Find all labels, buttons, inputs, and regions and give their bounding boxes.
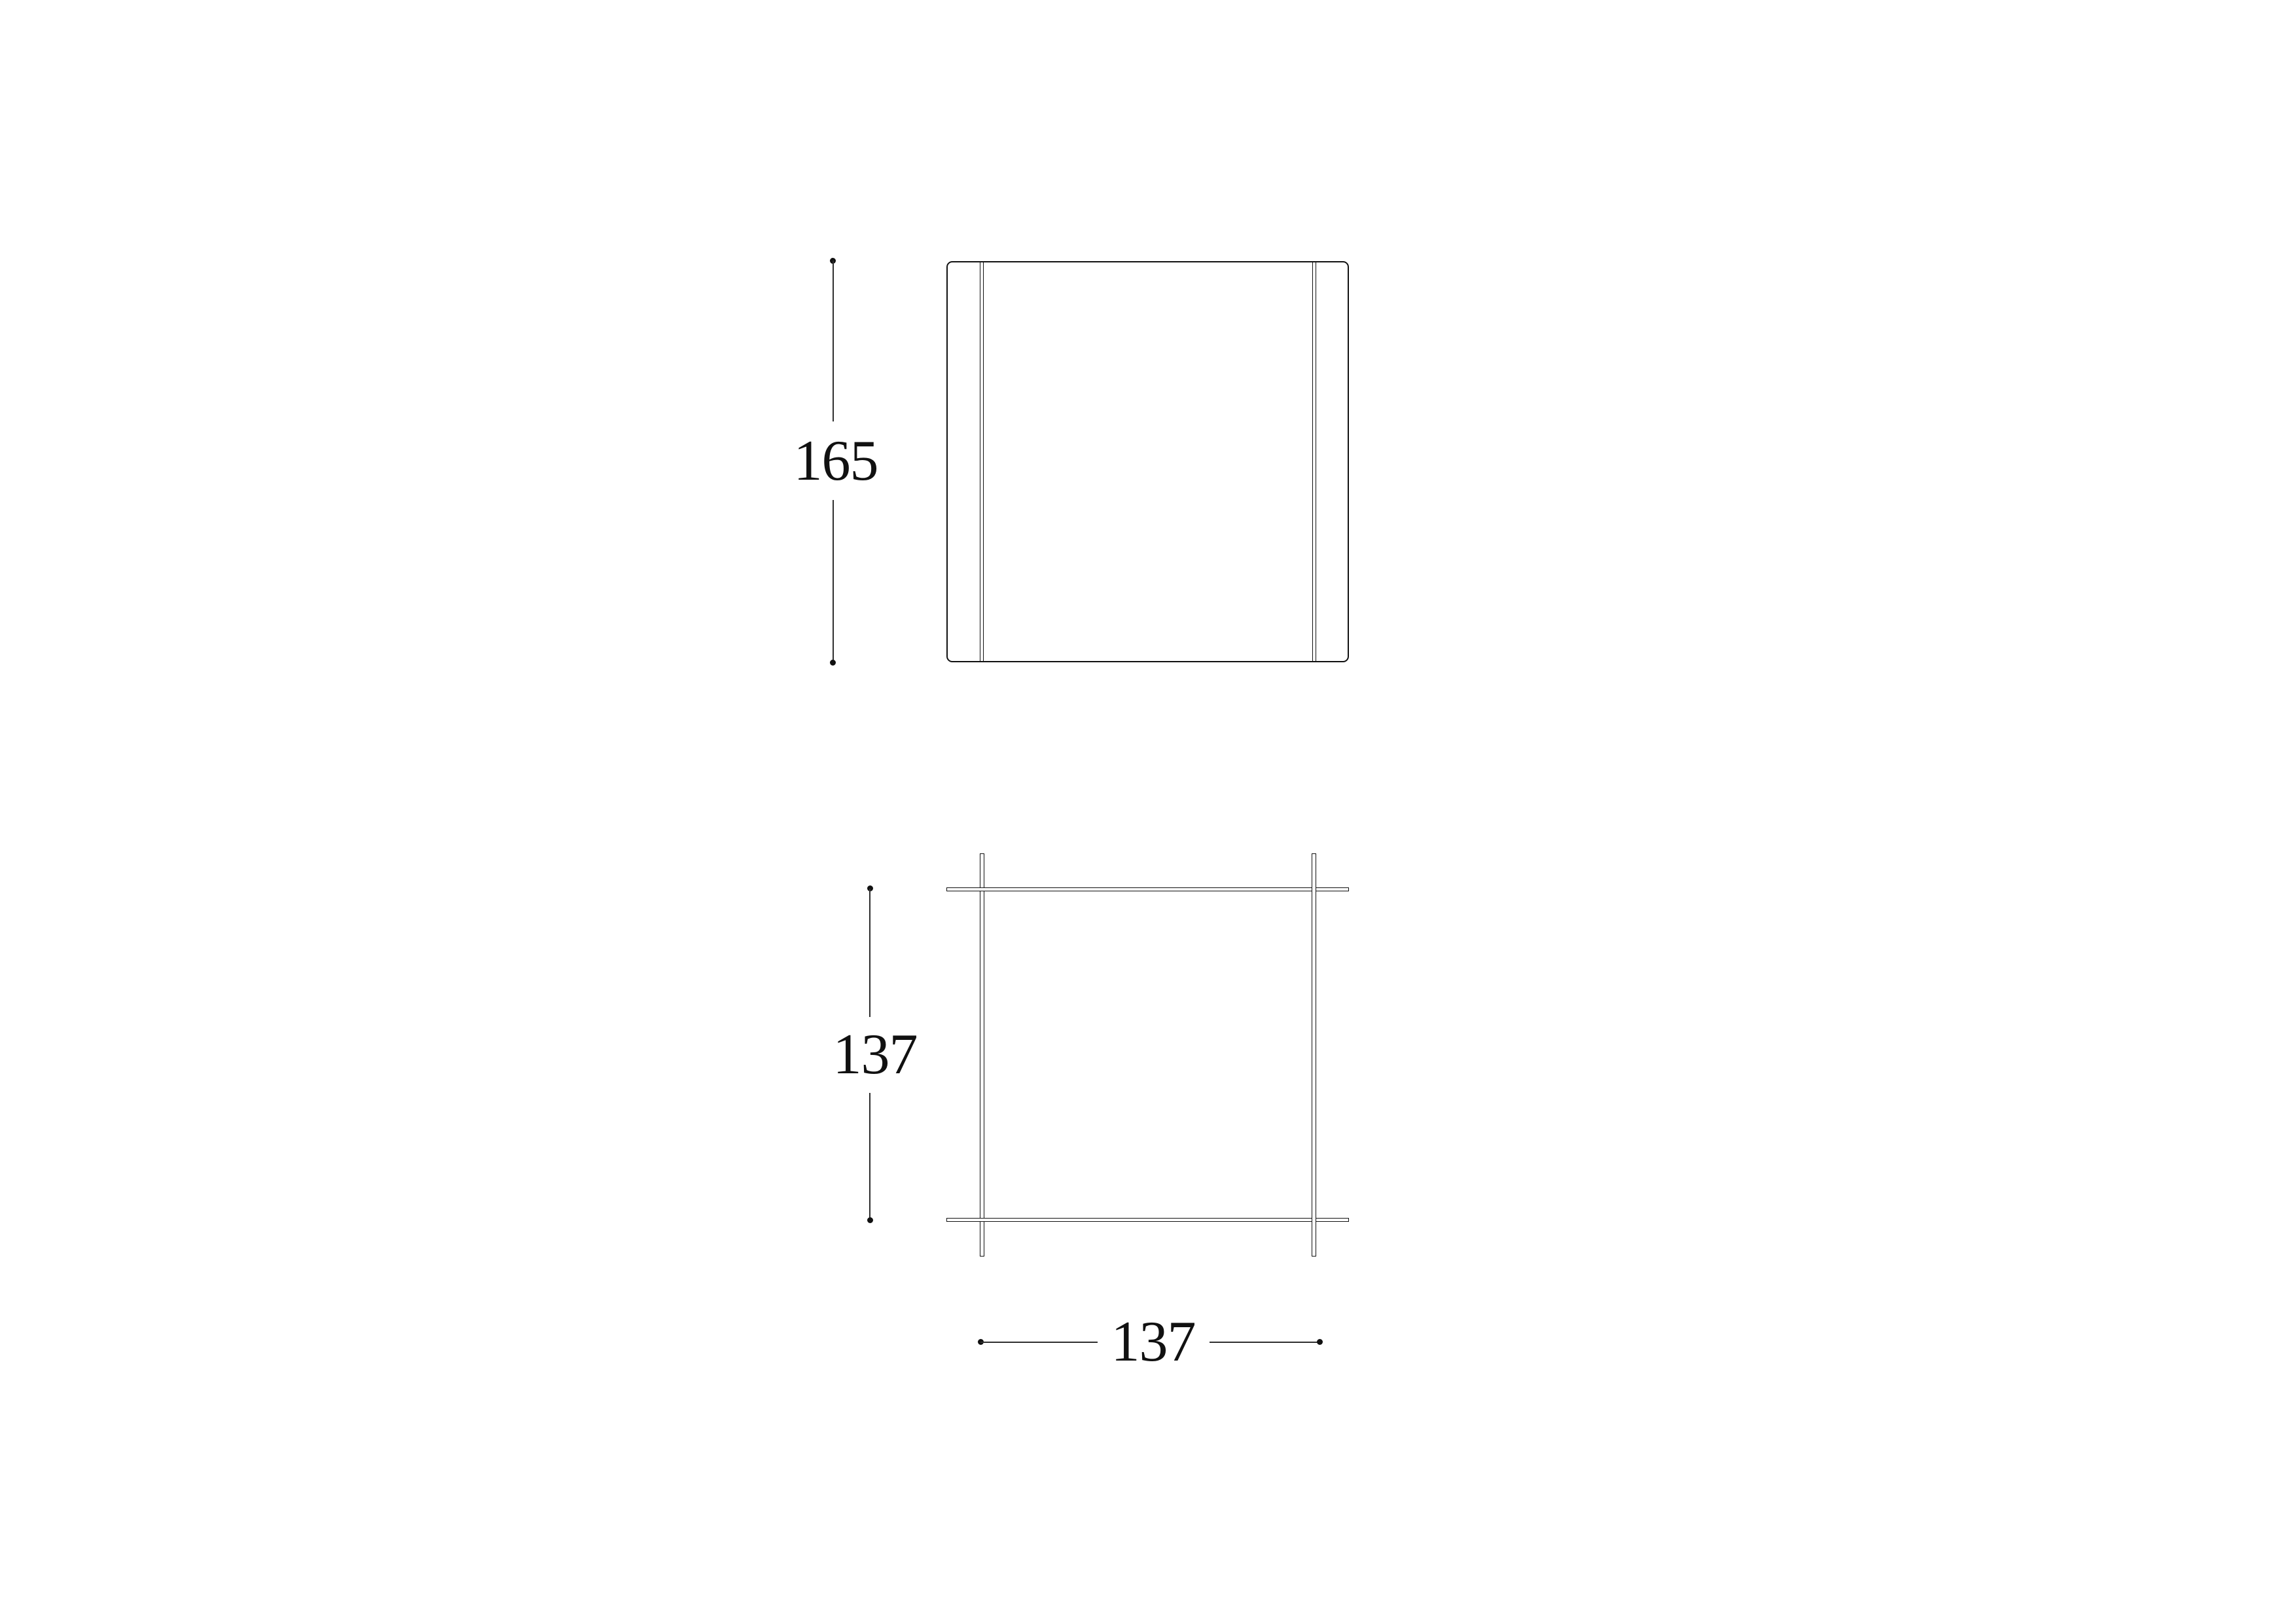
dimension-line-segment (833, 260, 834, 421)
dimension-line-segment (1210, 1342, 1319, 1343)
dimension-line-segment (833, 500, 834, 663)
front-view-right-panel-line (1312, 262, 1316, 661)
dimension-endpoint-dot (1317, 1339, 1323, 1345)
plan-view-top-edge-bar (946, 887, 1349, 892)
plan-view-right-leg-bar (1312, 853, 1316, 1257)
front-view-outline (946, 261, 1349, 662)
dimension-label-plan-depth: 137 (797, 1016, 954, 1094)
dimension-endpoint-dot (830, 660, 836, 666)
dimension-label-plan-width: 137 (1075, 1303, 1232, 1382)
plan-view-left-leg-bar (980, 853, 984, 1257)
front-view-left-panel-line (980, 262, 984, 661)
dimension-label-front-height: 165 (757, 422, 914, 501)
dimension-line-segment (869, 1093, 870, 1220)
dimension-line-segment (869, 889, 870, 1018)
plan-view-bottom-edge-bar (946, 1218, 1349, 1222)
technical-drawing-canvas: 165 137 137 (0, 0, 2296, 1623)
dimension-endpoint-dot (867, 1217, 873, 1223)
